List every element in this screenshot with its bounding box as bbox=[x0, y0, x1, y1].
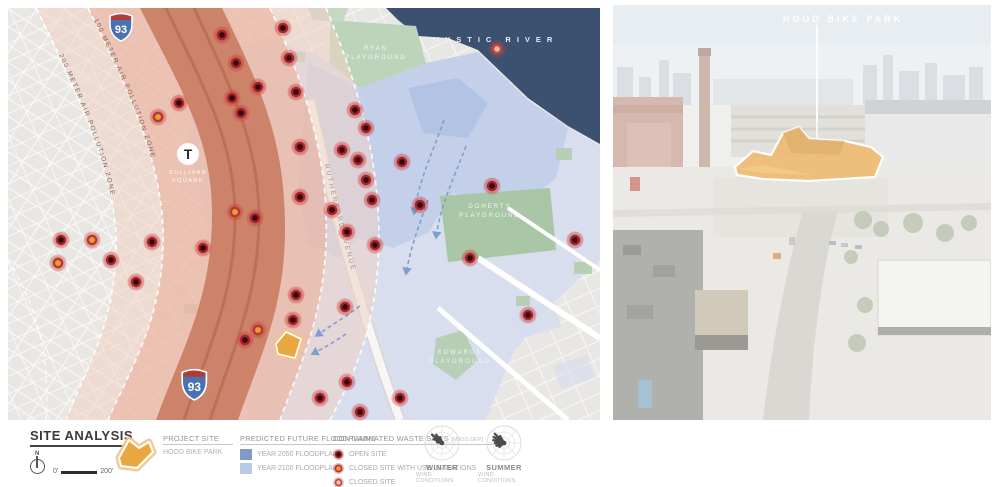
svg-text:SULLIVAN: SULLIVAN bbox=[169, 170, 207, 176]
hood-bike-park-label: HOOD BIKE PARK bbox=[763, 14, 923, 24]
legend: SITE ANALYSIS N 0' 200' PROJECT SITE HOO… bbox=[0, 424, 1000, 484]
floodplain-2050-swatch bbox=[240, 449, 252, 460]
svg-text:PLAYGROUND: PLAYGROUND bbox=[429, 359, 491, 365]
t-logo-icon: T bbox=[184, 146, 193, 162]
mystic-river-label: MYSTIC RIVER bbox=[433, 35, 558, 44]
svg-text:DOHERTY: DOHERTY bbox=[468, 204, 511, 210]
winter-wind-rose: WINTER WIND CONDITIONS bbox=[416, 424, 468, 484]
summer-wind-rose-icon bbox=[485, 424, 523, 462]
svg-text:RYAN: RYAN bbox=[364, 46, 388, 52]
aerial-photo: HOOD BIKE PARK bbox=[613, 5, 991, 420]
smokestack bbox=[699, 50, 710, 172]
svg-text:SQUARE: SQUARE bbox=[172, 178, 204, 184]
closed-site-dot bbox=[333, 477, 344, 487]
scale-end: 200' bbox=[100, 468, 113, 475]
aerial-scene bbox=[613, 5, 991, 420]
winter-wind-rose-icon bbox=[423, 424, 461, 462]
analysis-map: 100 METER AIR POLLUTION ZONE 200 METER A… bbox=[8, 8, 600, 420]
svg-text:EDWARDS: EDWARDS bbox=[438, 350, 482, 356]
legend-wind-block: WINTER WIND CONDITIONS SUMMER WIND CONDI… bbox=[416, 424, 530, 484]
closed-limited-dot bbox=[333, 463, 344, 474]
legend-project-icon bbox=[113, 432, 159, 479]
project-site-name: HOOD BIKE PARK bbox=[163, 449, 233, 456]
summer-wind-rose: SUMMER WIND CONDITIONS bbox=[478, 424, 530, 484]
project-site-marker bbox=[276, 332, 301, 358]
open-site-dot bbox=[333, 449, 344, 460]
project-site-heading: PROJECT SITE bbox=[163, 434, 233, 445]
floodplain-2100-swatch bbox=[240, 463, 252, 474]
svg-text:PLAYGROUND: PLAYGROUND bbox=[459, 213, 521, 219]
site-analysis-board: 100 METER AIR POLLUTION ZONE 200 METER A… bbox=[0, 0, 1000, 487]
legend-project-block: PROJECT SITE HOOD BIKE PARK bbox=[163, 428, 233, 456]
scale-start: 0' bbox=[53, 468, 58, 475]
north-arrow-icon: N bbox=[30, 453, 45, 475]
scale-bar: 0' 200' bbox=[53, 468, 113, 475]
svg-text:93: 93 bbox=[188, 380, 202, 394]
map-panel: 100 METER AIR POLLUTION ZONE 200 METER A… bbox=[8, 8, 600, 420]
svg-text:PLAYGROUND: PLAYGROUND bbox=[345, 55, 407, 61]
svg-text:93: 93 bbox=[115, 24, 127, 36]
